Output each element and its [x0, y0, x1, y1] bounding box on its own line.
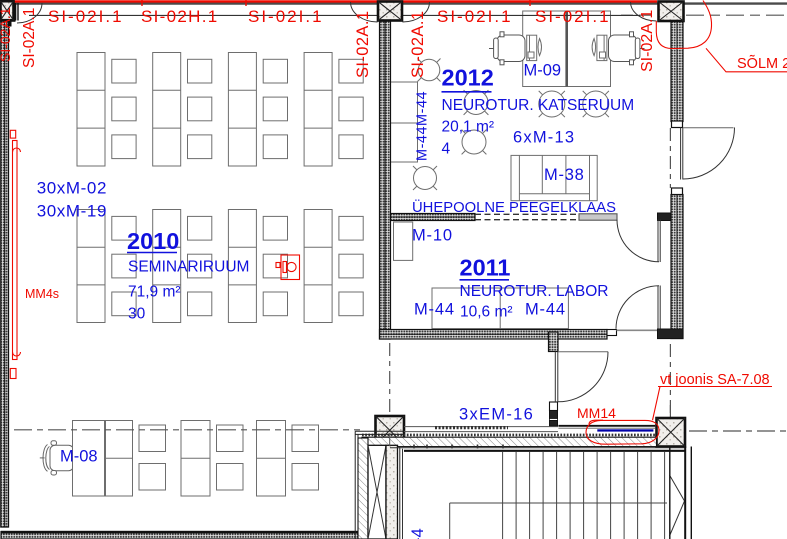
svg-text:M-44: M-44: [414, 301, 455, 319]
svg-text:vt joonis SA-7.08: vt joonis SA-7.08: [660, 372, 770, 388]
svg-text:M-10: M-10: [412, 227, 453, 245]
svg-text:SI-02I.1: SI-02I.1: [248, 7, 324, 26]
svg-text:30: 30: [128, 306, 146, 323]
svg-text:ÜHEPOOLNE PEEGELKLAAS: ÜHEPOOLNE PEEGELKLAAS: [412, 198, 616, 216]
svg-text:MM4s: MM4s: [25, 287, 59, 301]
svg-text:4: 4: [442, 141, 451, 158]
svg-text:SI-02A.1: SI-02A.1: [409, 11, 427, 78]
svg-text:-4: -4: [409, 528, 427, 539]
svg-text:SI-02A.1: SI-02A.1: [0, 7, 13, 62]
svg-text:M-38: M-38: [544, 166, 585, 184]
svg-text:30xM-02: 30xM-02: [37, 179, 107, 198]
svg-text:6xM-13: 6xM-13: [513, 129, 575, 147]
svg-text:SI-02A.1: SI-02A.1: [21, 8, 38, 68]
svg-text:SÕLM 2: SÕLM 2: [737, 55, 787, 72]
svg-text:2010: 2010: [127, 228, 179, 254]
svg-text:SI-02H.1: SI-02H.1: [141, 7, 219, 26]
svg-text:30xM-19: 30xM-19: [37, 202, 107, 221]
svg-text:SI-02I.1: SI-02I.1: [535, 7, 611, 26]
svg-text:NEUROTUR. LABOR: NEUROTUR. LABOR: [460, 283, 609, 300]
svg-text:SEMINARIRUUM: SEMINARIRUUM: [128, 259, 249, 276]
svg-text:2011: 2011: [460, 255, 511, 281]
svg-text:M-09: M-09: [524, 62, 562, 80]
svg-text:M-08: M-08: [60, 448, 98, 466]
svg-text:M-44: M-44: [525, 301, 566, 319]
svg-text:10,6 m²: 10,6 m²: [460, 304, 513, 321]
svg-text:SI-02A.1: SI-02A.1: [639, 10, 656, 72]
svg-text:2012: 2012: [442, 65, 494, 91]
svg-text:3xEM-16: 3xEM-16: [459, 406, 534, 424]
svg-text:MM14: MM14: [577, 405, 616, 421]
svg-text:SI-02A.1: SI-02A.1: [354, 11, 372, 78]
svg-text:71,9 m²: 71,9 m²: [128, 284, 181, 301]
svg-text:NEUROTUR. KATSERUUM: NEUROTUR. KATSERUUM: [442, 97, 635, 114]
svg-text:20,1 m²: 20,1 m²: [442, 119, 495, 136]
svg-text:SI-02I.1: SI-02I.1: [48, 7, 124, 26]
svg-text:SI-02I.1: SI-02I.1: [437, 7, 513, 26]
svg-text:M-44M-44: M-44M-44: [415, 91, 431, 161]
